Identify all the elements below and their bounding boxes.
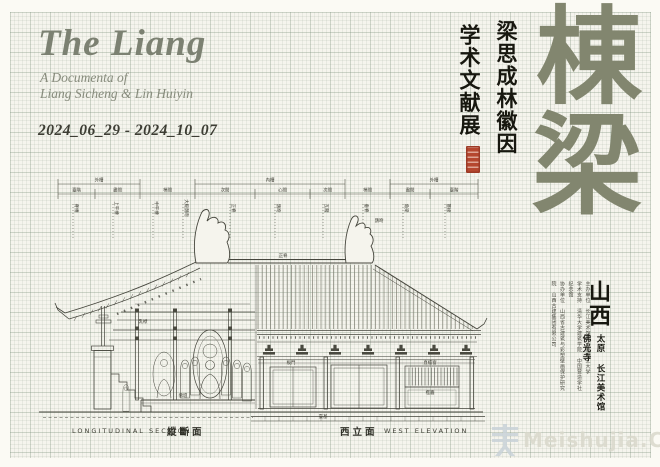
buddha-statues	[153, 330, 227, 399]
elevation-platform	[251, 412, 485, 421]
svg-text:外槽: 外槽	[95, 177, 104, 184]
exhibition-dates: 2024_06_29 - 2024_10_07	[38, 122, 217, 140]
svg-text:內槽: 內槽	[266, 177, 275, 184]
caption-west-elevation-en: WEST ELEVATION	[384, 427, 468, 435]
svg-text:梢間: 梢間	[163, 187, 172, 194]
svg-text:外槽: 外槽	[430, 177, 439, 184]
svg-text:鴟吻: 鴟吻	[375, 217, 384, 224]
svg-text:佛壇: 佛壇	[179, 392, 188, 399]
watermark-text: Meishujia.Cn	[523, 428, 660, 452]
calligraphy-char-liang: 梁	[532, 112, 642, 222]
poster-subtitle: A Documenta of Liang Sicheng & Lin Huiyi…	[40, 70, 193, 101]
beam-bracket-blocks	[135, 309, 232, 341]
lattice-window	[405, 366, 459, 408]
architectural-drawing: 臺階盡間梢間次間心間次間梢間盡間臺階外槽內槽外槽脊槫上平槫中平槫大殿鴟吻正脊鴟吻…	[25, 160, 495, 460]
svg-text:梢間: 梢間	[363, 187, 372, 194]
section-interior	[39, 265, 256, 418]
dougong-row	[263, 345, 472, 355]
svg-text:直櫺窗: 直櫺窗	[423, 359, 437, 366]
headline-names: 梁思成林徽因	[491, 20, 521, 155]
exhibition-poster: The Liang A Documenta of Liang Sicheng &…	[0, 0, 660, 467]
calligraphy-char-dong: 棟	[536, 6, 642, 112]
watermark-logo-icon	[492, 424, 518, 456]
svg-text:盡間: 盡間	[113, 187, 122, 194]
elevation-facade	[251, 357, 485, 421]
svg-text:鴟吻: 鴟吻	[275, 204, 282, 213]
svg-text:次間: 次間	[221, 187, 230, 194]
svg-text:中平槫: 中平槫	[153, 201, 160, 215]
svg-text:正脊: 正脊	[230, 204, 237, 213]
ridge-ornament-section	[194, 210, 229, 263]
svg-text:盡間: 盡間	[406, 187, 415, 194]
elevation-roof	[257, 265, 487, 331]
buddha-altar	[141, 400, 255, 412]
credit-column-1: 学术支持 清华大学建筑学院 中国营造学社纪念馆	[565, 281, 582, 393]
headline-exhibition: 学术文献展	[454, 24, 484, 137]
svg-text:檻牆: 檻牆	[426, 389, 435, 396]
svg-text:脊槫: 脊槫	[73, 204, 80, 213]
caption-longitudinal-section-zh: 縱斷面	[167, 424, 205, 438]
poster-title: The Liang	[38, 22, 206, 65]
svg-text:心間: 心間	[278, 187, 287, 194]
svg-text:簷椽: 簷椽	[445, 204, 452, 213]
svg-text:臺階: 臺階	[72, 187, 81, 194]
svg-text:臺基: 臺基	[319, 413, 328, 420]
svg-text:板門: 板門	[287, 359, 296, 366]
caption-west-elevation-zh: 西立面	[340, 424, 378, 438]
ridge-ornament-elevation	[345, 216, 374, 263]
svg-text:上平槫: 上平槫	[113, 201, 120, 215]
svg-text:角梁: 角梁	[403, 204, 410, 213]
door-panel-2	[331, 365, 387, 408]
svg-text:乳栿: 乳栿	[139, 318, 148, 325]
watermark: Meishujia.Cn	[492, 424, 660, 456]
svg-text:大殿鴟吻: 大殿鴟吻	[183, 199, 190, 217]
svg-text:次間: 次間	[323, 187, 332, 194]
venue-region: 山西	[582, 280, 614, 328]
subtitle-line-2: Liang Sicheng & Lin Huiyin	[40, 86, 193, 102]
credit-column-2: 协办单位 山西省古建筑与彩塑壁画保护研究院 山西古建集团有限公司	[548, 281, 565, 393]
svg-text:垂脊: 垂脊	[363, 204, 370, 213]
venue-city-museum: 太原 长江美术馆	[595, 334, 607, 412]
svg-text:正脊: 正脊	[279, 252, 288, 259]
svg-text:瓦隴: 瓦隴	[323, 204, 330, 213]
door-panel-1	[270, 367, 316, 407]
svg-text:臺階: 臺階	[450, 187, 459, 194]
subtitle-line-1: A Documenta of	[40, 70, 193, 86]
venue-temple: 佛光寺	[581, 334, 593, 363]
